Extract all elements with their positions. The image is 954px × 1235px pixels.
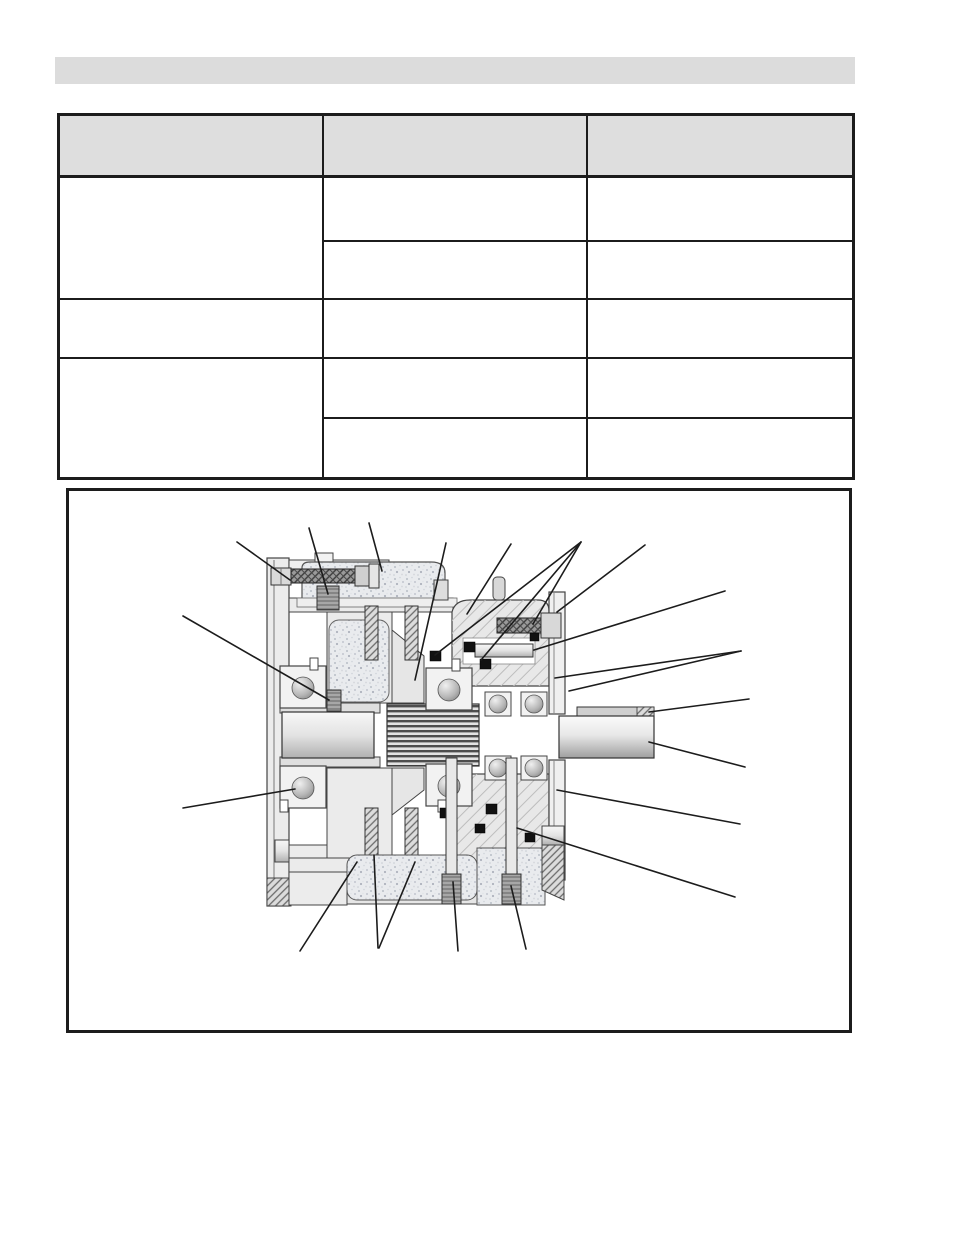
output-shaft [559, 707, 654, 758]
splined-coupling [387, 704, 479, 766]
table-cell [323, 241, 587, 299]
hub [280, 703, 380, 767]
table-cell [587, 299, 854, 358]
table-header-cell [323, 115, 587, 177]
table-cell [587, 241, 854, 299]
manual-page: { "page": { "background": "#ffffff" }, "… [0, 0, 954, 1235]
table-cell [59, 299, 323, 358]
table-cell [59, 358, 323, 479]
table-header-cell [59, 115, 323, 177]
vent-plug [493, 577, 505, 600]
adjusting-stud [317, 586, 339, 610]
case-foot [542, 845, 564, 900]
table-cell [587, 418, 854, 479]
table-row [59, 299, 854, 358]
table-cell [323, 299, 587, 358]
spec-table [57, 113, 855, 480]
ball-bearing-lower-left [280, 766, 326, 812]
ball-bearing-upper-left [280, 658, 326, 708]
table-cell [323, 177, 587, 242]
table-cell [59, 177, 323, 300]
table-row [59, 177, 854, 242]
table-cell [587, 358, 854, 418]
table-cell [323, 418, 587, 479]
table-cell [323, 358, 587, 418]
table-header-row [59, 115, 854, 177]
section-header-bar [55, 57, 855, 84]
table-cell [587, 177, 854, 242]
table-row [59, 358, 854, 418]
dowel-pin [475, 644, 533, 657]
table-header-cell [587, 115, 854, 177]
cross-section-diagram [69, 491, 849, 1030]
figure-frame [66, 488, 852, 1033]
